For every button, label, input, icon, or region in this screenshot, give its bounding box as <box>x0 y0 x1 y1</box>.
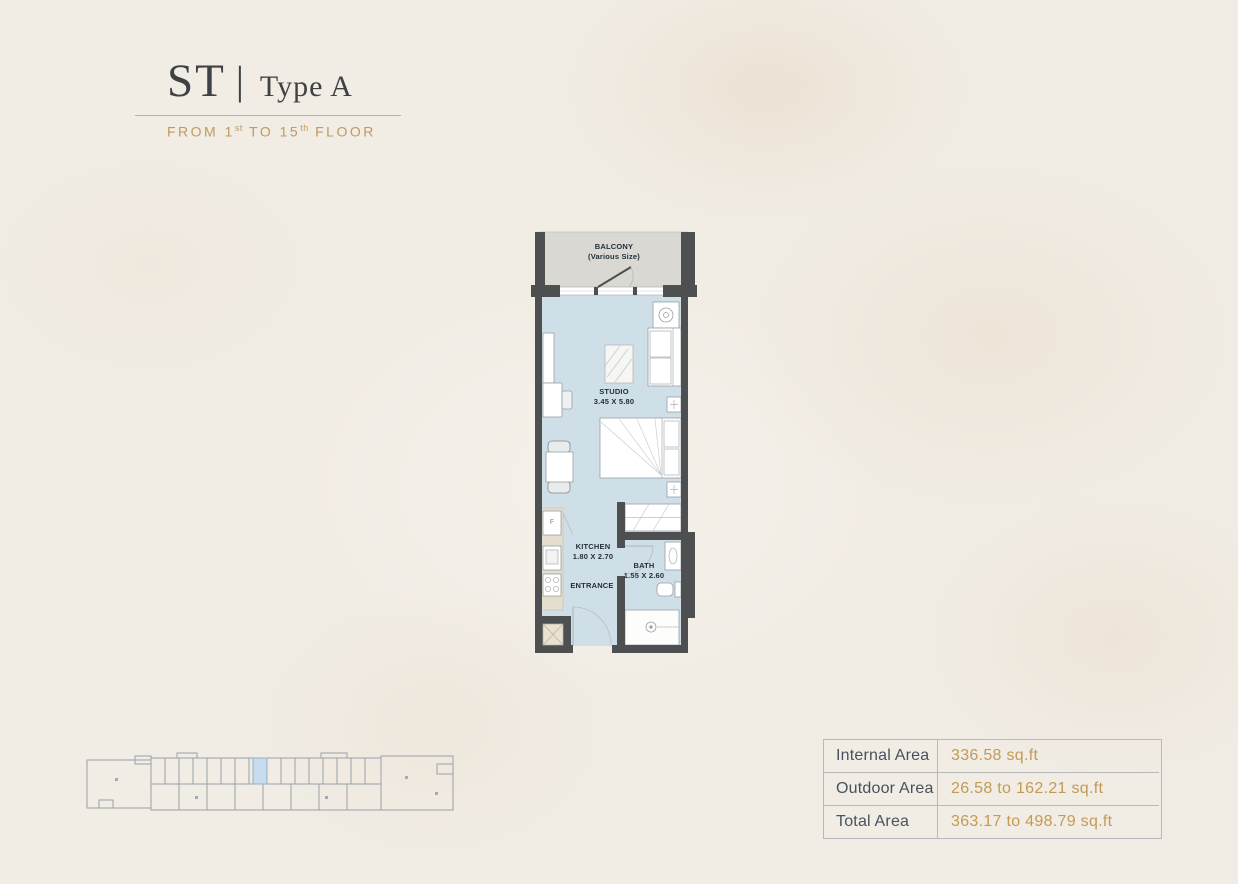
kitchen-dimensions: 1.80 X 2.70 <box>553 552 633 562</box>
entrance-title: ENTRANCE <box>552 581 632 591</box>
area-row-value: 336.58 sq.ft <box>938 740 1159 773</box>
floor-plan: BALCONY (Various Size) STUDIO 3.45 X 5.8… <box>531 230 697 654</box>
kitchen-title: KITCHEN <box>553 542 633 552</box>
rug <box>605 345 633 383</box>
balcony-label: BALCONY (Various Size) <box>531 242 697 261</box>
unit-type-label: Type A <box>260 70 353 104</box>
sofa <box>648 328 681 386</box>
area-row-label: Total Area <box>824 806 938 838</box>
balcony-subtitle: (Various Size) <box>531 252 697 262</box>
title-divider <box>135 115 401 116</box>
area-row-label: Internal Area <box>824 740 938 773</box>
balcony-glazing <box>542 287 681 295</box>
highlighted-unit <box>253 758 267 784</box>
entrance-label: ENTRANCE <box>552 581 632 591</box>
key-plan-drawing <box>85 750 457 816</box>
balcony-title: BALCONY <box>531 242 697 252</box>
page-title: ST | Type A <box>167 54 353 108</box>
floor-range-subtitle: FROM 1st TO 15th FLOOR <box>167 123 376 140</box>
fridge-label: F <box>543 518 561 528</box>
studio-label: STUDIO 3.45 X 5.80 <box>531 387 697 406</box>
washer-icon <box>653 302 679 328</box>
area-table: Internal Area 336.58 sq.ft Outdoor Area … <box>823 739 1162 839</box>
toilet <box>657 582 681 597</box>
shower <box>625 610 679 645</box>
subtitle-part: FLOOR <box>309 124 376 140</box>
subtitle-part: TO 15 <box>243 124 300 140</box>
nightstand <box>667 482 681 497</box>
wardrobe <box>625 504 681 531</box>
service-shaft <box>535 616 571 653</box>
bath-label: BATH 1.55 X 2.60 <box>604 561 684 580</box>
brochure-page: ST | Type A FROM 1st TO 15th FLOOR <box>0 0 1238 884</box>
bed <box>600 418 681 478</box>
building-key-plan <box>85 750 457 816</box>
area-row-value: 363.17 to 498.79 sq.ft <box>938 806 1159 838</box>
studio-dimensions: 3.45 X 5.80 <box>531 397 697 407</box>
subtitle-superscript: st <box>235 123 243 133</box>
subtitle-superscript: th <box>300 123 309 133</box>
area-row-value: 26.58 to 162.21 sq.ft <box>938 773 1159 806</box>
unit-type-code: ST <box>167 54 226 108</box>
area-row-label: Outdoor Area <box>824 773 938 806</box>
studio-title: STUDIO <box>531 387 697 397</box>
subtitle-part: FROM 1 <box>167 124 235 140</box>
bath-dimensions: 1.55 X 2.60 <box>604 571 684 581</box>
title-separator: | <box>236 57 244 104</box>
bath-title: BATH <box>604 561 684 571</box>
kitchen-label: KITCHEN 1.80 X 2.70 <box>553 542 633 561</box>
dining-set <box>546 441 573 493</box>
